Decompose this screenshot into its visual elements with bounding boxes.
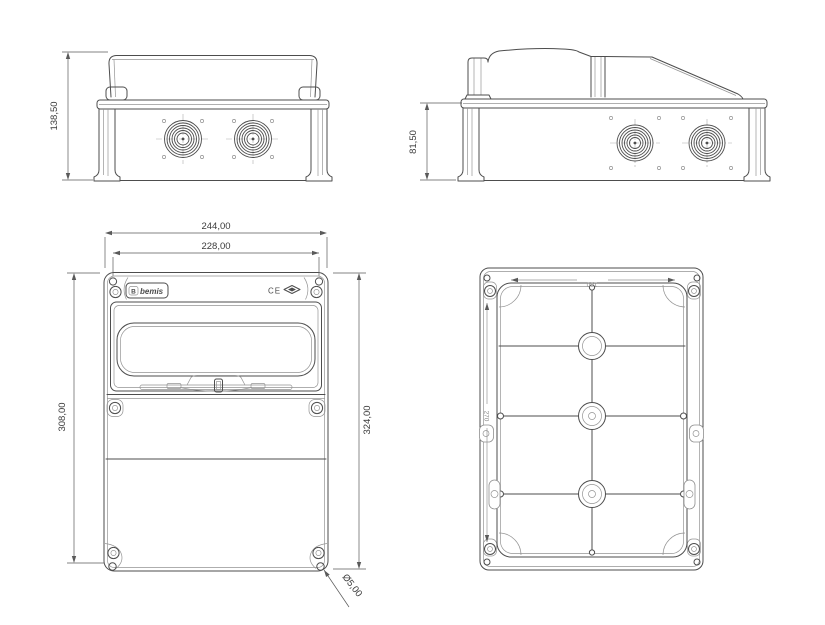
dim-height-label: 308,00: [57, 402, 68, 431]
view-rear: 180 270: [480, 268, 704, 570]
view-side-elevation: 81,50: [408, 49, 770, 181]
lid-screw-mr: [309, 400, 325, 417]
technical-drawing-canvas: 138,50: [0, 0, 825, 625]
lid-corner-screw-tl: [109, 278, 128, 300]
corner-tab-bl: [484, 539, 497, 565]
lid-latch: [140, 376, 292, 393]
ce-mark: CE: [268, 286, 300, 296]
enclosure-body: [458, 99, 770, 181]
dim-height-label: 81,50: [408, 130, 419, 154]
cable-knockout-2: [226, 114, 280, 164]
dim-hole-label: Ø5,00: [340, 572, 365, 599]
enclosure-lid-profile: [106, 56, 320, 101]
molded-height-label: 270: [483, 411, 490, 422]
lid-screw-ml: [107, 400, 123, 417]
brand-badge: B bemis: [126, 283, 168, 298]
enclosure-body: [94, 100, 332, 181]
cable-knockout-2: [681, 116, 732, 169]
latch-button: [215, 379, 223, 392]
mounting-hole: [109, 563, 116, 570]
dim-height-324: 324,00: [333, 273, 373, 569]
cable-knockout-1: [156, 114, 210, 164]
drawing-sheet: 138,50: [0, 0, 825, 625]
dim-width-label: 244,00: [201, 221, 230, 232]
center-boss-1: [579, 333, 606, 360]
dim-width-label: 228,00: [201, 241, 230, 252]
cable-knockout-1: [609, 116, 660, 169]
dim-width-228: 228,00: [113, 241, 319, 276]
dim-height-label: 324,00: [362, 405, 373, 434]
dim-height-label: 138,50: [49, 101, 60, 130]
dim-mount-hole-diameter: Ø5,00: [324, 570, 364, 607]
enclosure-front-outline: [104, 273, 328, 572]
side-tab-left: [480, 425, 494, 442]
side-tab-right: [690, 425, 704, 442]
ce-label: CE: [268, 287, 281, 296]
brand-mark: B: [131, 288, 136, 295]
corner-tab-tl: [484, 275, 497, 299]
center-boss-2: [579, 403, 606, 430]
inner-tab-left: [489, 480, 500, 509]
diamond-cert-icon: [284, 286, 300, 294]
corner-tab-br: [688, 539, 701, 565]
molded-width-label: 180: [586, 281, 597, 288]
enclosure-lid-profile: [465, 49, 743, 99]
transparent-window: [111, 302, 322, 391]
inner-tab-right: [684, 480, 695, 509]
center-boss-3: [579, 481, 606, 508]
dim-height-81: 81,50: [408, 103, 462, 180]
lid-corner-screw-tr: [304, 278, 323, 300]
brand-label: bemis: [140, 287, 164, 296]
corner-tab-tr: [688, 275, 701, 299]
view-front: 244,00 228,00 308,00 324,00: [57, 221, 373, 607]
dim-height-308: 308,00: [57, 273, 104, 563]
view-front-elevation: 138,50: [49, 52, 332, 181]
